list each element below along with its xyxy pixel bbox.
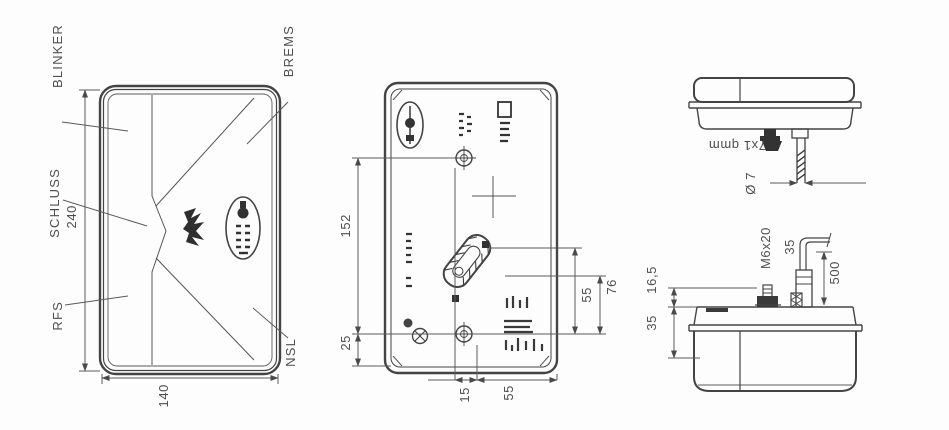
mounting-pad bbox=[706, 308, 728, 312]
dimension-width-140 bbox=[102, 374, 278, 384]
marking-stamp-left bbox=[406, 234, 412, 286]
dim-width-140: 140 bbox=[157, 384, 174, 408]
label-blinker: BLINKER bbox=[51, 24, 68, 88]
mounting-hole-top bbox=[452, 146, 476, 170]
side-view-outline bbox=[689, 307, 862, 391]
rear-view bbox=[352, 83, 606, 380]
cable-hatch bbox=[797, 150, 805, 180]
cable-gland bbox=[796, 233, 831, 307]
dim-stud-height-165: 16,5 bbox=[645, 266, 662, 294]
cable bbox=[792, 129, 808, 183]
drawing-linework bbox=[0, 0, 949, 430]
dim-connector-top-76: 76 bbox=[605, 279, 622, 295]
dimension-152-25 bbox=[352, 158, 455, 366]
cable-connector bbox=[439, 230, 495, 292]
front-view-leaders bbox=[62, 102, 288, 338]
bolt-badge bbox=[397, 102, 423, 148]
label-brems: BREMS bbox=[282, 25, 299, 77]
approval-badge bbox=[226, 197, 260, 259]
dim-hole-offset-15: 15 bbox=[458, 387, 475, 403]
marking-stamp-approval bbox=[498, 102, 511, 141]
stud-m6 bbox=[755, 285, 781, 307]
technical-drawing: BLINKER SCHLUSS 240 RFS BREMS NSL 140 15… bbox=[0, 0, 949, 430]
lens-section-lines bbox=[152, 95, 254, 365]
dim-cable-diameter: Ø 7 bbox=[744, 172, 761, 195]
marking-stamp-top bbox=[459, 114, 472, 135]
label-rfs: RFS bbox=[51, 301, 68, 331]
brand-mark bbox=[183, 208, 204, 246]
dim-edge-offset-55: 55 bbox=[502, 385, 519, 401]
marking-stamp-bottom bbox=[504, 296, 542, 351]
label-stud-thread-m6x20: M6x20 bbox=[759, 227, 776, 269]
label-nsl: NSL bbox=[284, 338, 301, 367]
label-schluss: SCHLUSS bbox=[48, 168, 65, 238]
dim-cable-length-500: 500 bbox=[828, 261, 845, 285]
dimension-165-35 bbox=[668, 288, 757, 358]
dim-bottom-offset-25: 25 bbox=[339, 335, 356, 351]
dim-connector-bottom-55: 55 bbox=[580, 287, 597, 303]
connector-pin-top bbox=[482, 241, 489, 248]
screw-symbol bbox=[404, 319, 428, 344]
label-cable-spec: 7x1 qmm bbox=[696, 139, 766, 152]
dim-hole-spacing-152: 152 bbox=[339, 214, 356, 238]
dim-gland-offset-35: 35 bbox=[783, 239, 800, 255]
top-view bbox=[689, 78, 866, 183]
dimension-height-240 bbox=[79, 90, 100, 371]
center-cross bbox=[472, 176, 516, 218]
dim-height-240: 240 bbox=[65, 205, 82, 229]
front-view bbox=[62, 86, 288, 384]
top-view-outline bbox=[689, 78, 861, 129]
dim-body-depth-35: 35 bbox=[645, 315, 662, 331]
